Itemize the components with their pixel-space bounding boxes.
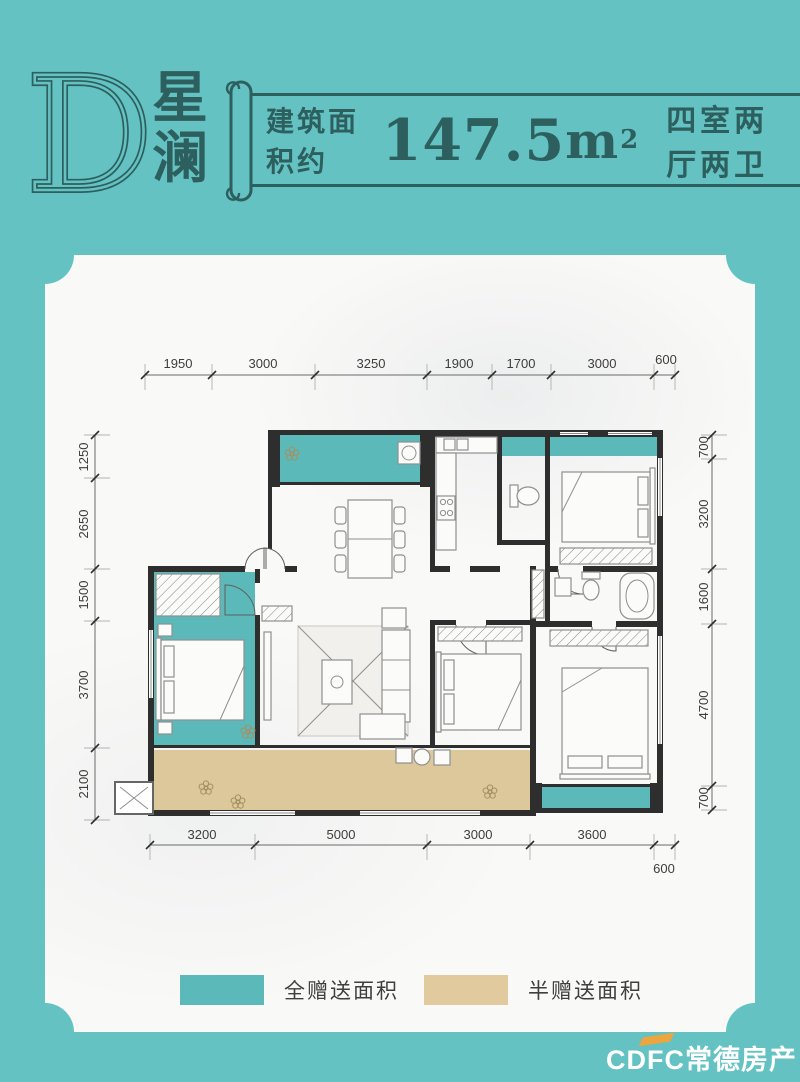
banner-text: 建筑面积约 147.5 m 2 四室两厅两卫 bbox=[258, 96, 800, 184]
area-label: 建筑面积约 bbox=[266, 100, 368, 180]
elevator-shaft bbox=[115, 782, 153, 814]
svg-text:2650: 2650 bbox=[76, 510, 91, 539]
svg-text:1900: 1900 bbox=[445, 356, 474, 371]
svg-text:5000: 5000 bbox=[327, 827, 356, 842]
plan-letter-outline: D D bbox=[18, 52, 148, 207]
svg-text:3700: 3700 bbox=[76, 671, 91, 700]
area-unit: m bbox=[565, 111, 618, 170]
svg-text:600: 600 bbox=[655, 352, 677, 367]
svg-text:3200: 3200 bbox=[696, 500, 711, 529]
half-gift-area bbox=[154, 750, 530, 810]
plan-name-char-2: 澜 bbox=[148, 130, 212, 186]
dimension-chain-top: 1950 3000 3250 1900 1700 3000 600 bbox=[141, 352, 679, 390]
svg-text:1600: 1600 bbox=[696, 583, 711, 612]
banner-bottom-line bbox=[252, 184, 800, 187]
dimension-chain-left: 1250 2650 1500 3700 2100 bbox=[76, 431, 110, 824]
legend-half-gift-label: 半赠送面积 bbox=[528, 975, 643, 1005]
svg-text:3000: 3000 bbox=[464, 827, 493, 842]
svg-text:1250: 1250 bbox=[76, 443, 91, 472]
svg-text:700: 700 bbox=[696, 436, 711, 458]
flyer: D D 星 澜 建筑面积约 147.5 m 2 四室两厅两卫 bbox=[0, 0, 800, 1082]
svg-text:700: 700 bbox=[696, 787, 711, 809]
plan-name-char-1: 星 bbox=[148, 70, 212, 126]
svg-text:1500: 1500 bbox=[76, 581, 91, 610]
legend-full-gift-label: 全赠送面积 bbox=[284, 975, 399, 1005]
area-exponent: 2 bbox=[620, 125, 638, 155]
svg-text:3000: 3000 bbox=[588, 356, 617, 371]
half-gift-swatch bbox=[424, 975, 508, 1005]
svg-text:600: 600 bbox=[653, 861, 675, 876]
svg-text:4700: 4700 bbox=[696, 691, 711, 720]
legend-half-gift: 半赠送面积 bbox=[424, 975, 643, 1005]
area-value: 147.5 bbox=[382, 107, 566, 174]
svg-text:2100: 2100 bbox=[76, 770, 91, 799]
corner-bite-top-right bbox=[726, 226, 784, 284]
watermark-logo: CDFC常德房产 bbox=[606, 1038, 797, 1077]
corner-bite-top-left bbox=[16, 226, 74, 284]
svg-text:3200: 3200 bbox=[188, 827, 217, 842]
dimension-chain-right: 700 3200 1600 4700 700 bbox=[696, 431, 727, 814]
svg-text:3250: 3250 bbox=[357, 356, 386, 371]
svg-text:3000: 3000 bbox=[249, 356, 278, 371]
svg-text:1950: 1950 bbox=[164, 356, 193, 371]
legend-full-gift: 全赠送面积 bbox=[180, 975, 399, 1005]
svg-text:3600: 3600 bbox=[578, 827, 607, 842]
svg-text:D: D bbox=[26, 52, 148, 207]
rooms-label: 四室两厅两卫 bbox=[666, 96, 800, 184]
dimension-chain-bottom: 3200 5000 3000 3600 600 bbox=[146, 827, 679, 876]
corner-bite-bottom-left bbox=[16, 1003, 74, 1061]
svg-text:1700: 1700 bbox=[507, 356, 536, 371]
floorplan-drawing: 1950 3000 3250 1900 1700 3000 600 1250 2… bbox=[60, 330, 740, 910]
full-gift-swatch bbox=[180, 975, 264, 1005]
